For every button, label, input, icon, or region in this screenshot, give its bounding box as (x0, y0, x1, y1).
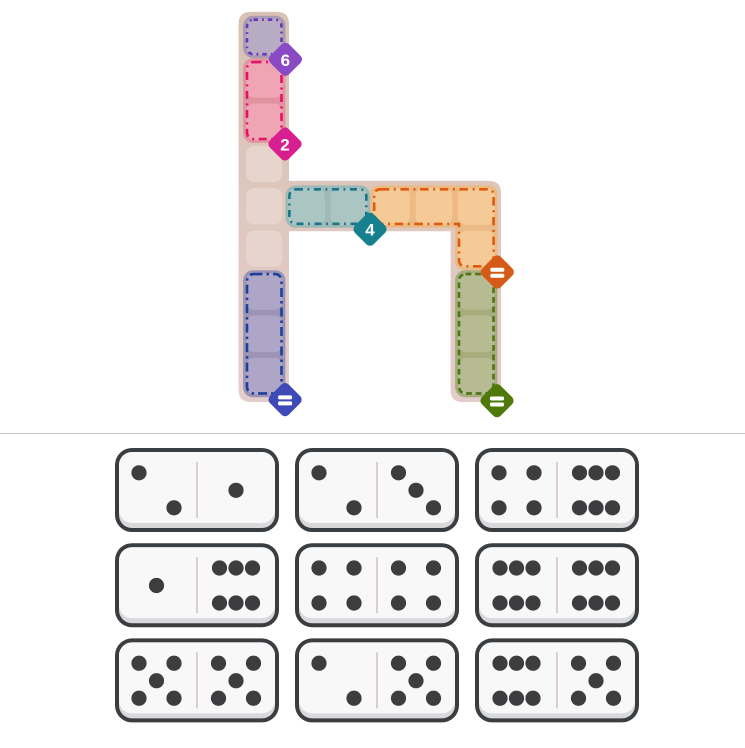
svg-text:6: 6 (281, 51, 290, 70)
svg-text:2: 2 (280, 136, 289, 155)
svg-text:4: 4 (365, 221, 375, 240)
